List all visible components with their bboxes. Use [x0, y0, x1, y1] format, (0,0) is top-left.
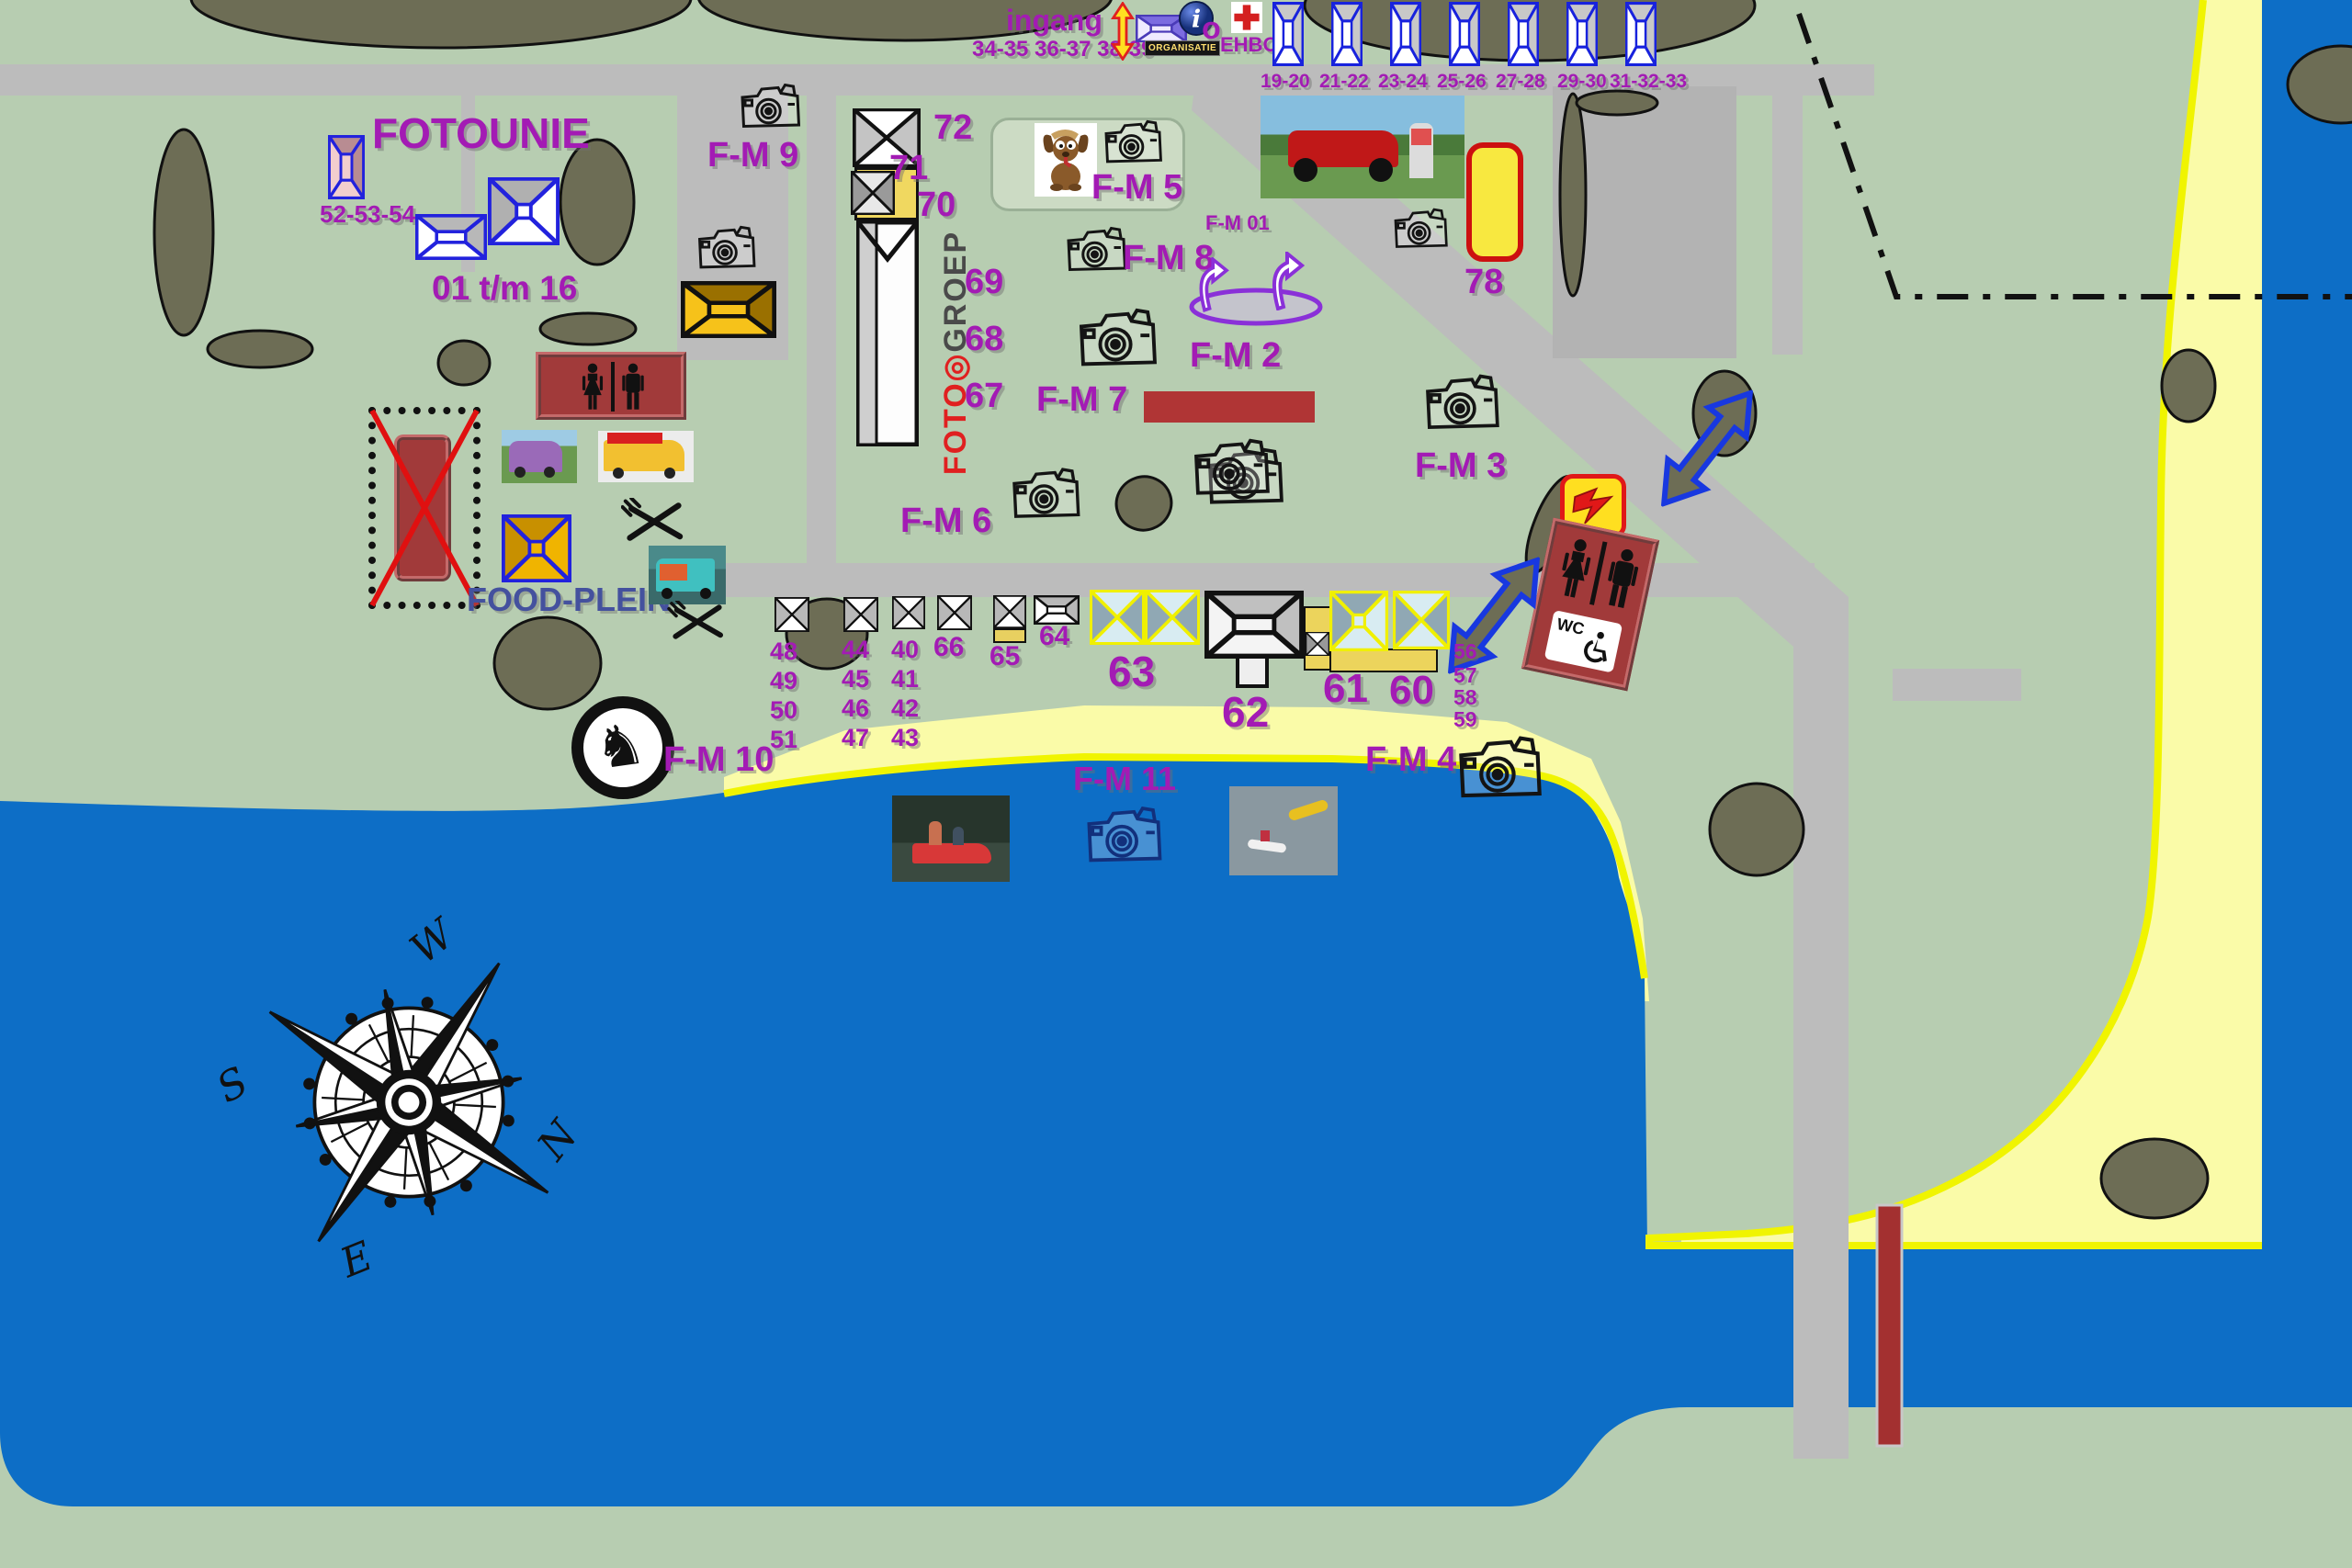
info-label: o — [1202, 13, 1221, 44]
entrance-arrow-icon — [1109, 2, 1136, 61]
fm4-label: F-M 4 — [1365, 742, 1456, 777]
cutlery-icon — [663, 601, 731, 643]
fm9-label: F-M 9 — [707, 138, 798, 173]
ehbo-label: EHBO — [1220, 35, 1279, 55]
paddler — [1261, 830, 1270, 841]
person-vest — [1411, 129, 1431, 145]
stand-62-annex — [1236, 655, 1269, 688]
stand-tent-63b — [1145, 590, 1200, 645]
stand-tent-63a — [1090, 590, 1145, 645]
stand-tent-48 — [775, 597, 809, 632]
truck-wheel — [514, 467, 526, 478]
stand-number-70: 70 — [917, 187, 955, 222]
camera-icon — [1389, 206, 1452, 255]
road-vertical-west — [807, 96, 836, 596]
man-icon — [1600, 546, 1644, 612]
curved-arrow-icon — [1194, 257, 1237, 312]
red-cross-out — [368, 407, 481, 609]
paddler — [953, 827, 964, 845]
divider — [611, 362, 615, 412]
stand-number-65: 65 — [989, 643, 1020, 671]
curved-arrow-icon — [1266, 252, 1314, 310]
fm5-label: F-M 5 — [1091, 170, 1182, 205]
road-spur-ne — [1772, 96, 1803, 355]
stand-tent-61 — [1329, 591, 1388, 651]
canoe-shape — [912, 843, 991, 863]
stand-tent-29-30 — [1566, 2, 1598, 66]
truck-cab — [660, 564, 687, 581]
bridge-red — [1877, 1205, 1902, 1446]
stand-label: 31-32-33 — [1610, 72, 1687, 91]
stand-number: 42 — [891, 696, 919, 721]
fotounie-range: 01 t/m 16 — [432, 271, 577, 305]
wheelchair-icon — [1576, 626, 1617, 669]
stand-tent-27-28 — [1508, 2, 1539, 66]
camera-icon — [1069, 305, 1165, 377]
dog-icon — [1038, 127, 1093, 193]
stand-number: 50 — [770, 698, 797, 723]
stand-number: 59 — [1453, 709, 1477, 730]
kayak-yellow — [1287, 798, 1329, 821]
knight-icon: ♞ — [594, 714, 653, 780]
stand-number-61: 61 — [1323, 669, 1368, 709]
stand-label: 23-24 — [1378, 72, 1428, 91]
stand-label: 19-20 — [1261, 72, 1310, 91]
stand-number: 43 — [891, 726, 919, 750]
stand-number-67: 67 — [965, 378, 1003, 413]
fm6-label: F-M 6 — [900, 503, 991, 538]
gold-tent-icon — [681, 281, 776, 338]
stand-number: 51 — [770, 728, 797, 752]
event-terrain-map: ingang 34-35 36-37 38-39 ORGANISATIE i o… — [0, 0, 2352, 1568]
stand-number-69: 69 — [965, 265, 1003, 299]
stand-number: 47 — [842, 726, 869, 750]
stand-number: 49 — [770, 669, 797, 694]
car-wheel — [1294, 158, 1317, 182]
truck-sign — [607, 433, 662, 444]
fm10-label: F-M 10 — [663, 742, 774, 777]
stand-number: 44 — [842, 637, 869, 662]
fm3-label: F-M 3 — [1415, 448, 1506, 483]
cutlery-icon — [621, 498, 687, 546]
truck-wheel — [544, 467, 555, 478]
woman-icon — [580, 363, 605, 411]
stand-tent-65 — [993, 595, 1026, 628]
camera-icon — [1099, 118, 1167, 171]
stand-78-area — [1466, 142, 1523, 262]
stand-tent-21-22 — [1331, 2, 1363, 66]
food-truck-photo-color — [649, 546, 726, 604]
svg-text:i: i — [1192, 6, 1201, 34]
stand-label: 29-30 — [1557, 72, 1607, 91]
truck-wheel — [661, 588, 673, 599]
truck-body — [604, 440, 684, 471]
dog-picture — [1035, 123, 1097, 197]
fotounie-tent-sq-icon — [488, 177, 560, 245]
stand-number-62: 62 — [1222, 691, 1269, 733]
compass-rose-icon — [234, 919, 583, 1286]
toilet-building — [536, 352, 686, 420]
fm10-club-logo: ♞ — [571, 696, 674, 799]
stand-tent-31-32-33 — [1625, 2, 1657, 66]
fm7-label: F-M 7 — [1036, 382, 1127, 417]
fm11-label: F-M 11 — [1073, 762, 1176, 795]
stand-tent-23-24 — [1390, 2, 1421, 66]
food-plein-label: FOOD-PLEIN — [467, 581, 671, 619]
car-wheel — [1369, 158, 1393, 182]
stand-number-68: 68 — [965, 321, 1003, 356]
fotounie-tent-h-icon — [415, 214, 487, 260]
marquee-small-tent — [851, 171, 895, 215]
road-pier — [1793, 597, 1849, 1459]
canoe-photo — [892, 795, 1010, 882]
closed-area-box — [368, 407, 481, 609]
fotounie-stands-52: 52-53-54 — [320, 202, 415, 226]
water-right-strip — [2262, 0, 2352, 1260]
stand-number: 40 — [891, 637, 919, 662]
fotounie-tent-icon — [328, 135, 365, 199]
camera-icon — [1005, 465, 1086, 527]
stand-61-small-tent — [1306, 632, 1329, 656]
camera-icon — [1452, 731, 1547, 810]
food-tent-icon — [502, 514, 571, 582]
fm2-stage — [1144, 391, 1315, 423]
camera-icon — [692, 223, 761, 276]
stand-number: 46 — [842, 696, 869, 721]
camera-icon — [1185, 435, 1277, 505]
entrance-label: ingang — [1006, 6, 1102, 35]
stand-number-71: 71 — [889, 151, 928, 186]
fotounie-title: FOTOUNIE — [372, 112, 590, 154]
stand-number-78: 78 — [1464, 265, 1503, 299]
food-truck-photo-purple — [502, 430, 577, 483]
vintage-car-photo — [1261, 96, 1464, 198]
first-aid-icon — [1231, 2, 1262, 33]
truck-wheel — [700, 588, 711, 599]
stand-number: 57 — [1453, 665, 1477, 686]
stand-tent-60 — [1393, 591, 1450, 649]
truck-wheel — [664, 468, 675, 479]
stand-number-66: 66 — [933, 634, 964, 661]
stand-tent-66 — [937, 595, 972, 630]
stand-number-64: 64 — [1039, 623, 1069, 650]
food-truck-photo-yellow — [598, 431, 694, 482]
stand-number: 45 — [842, 667, 869, 692]
fm01-label: F-M 01 — [1205, 213, 1270, 233]
kayak-photo — [1229, 786, 1338, 875]
stand-tent-19-20 — [1272, 2, 1304, 66]
stand-label: 27-28 — [1496, 72, 1545, 91]
man-icon — [620, 363, 646, 411]
paddler — [929, 821, 942, 845]
stand-tent-40 — [892, 596, 925, 629]
truck-wheel — [613, 468, 624, 479]
stand-tent-25-26 — [1449, 2, 1480, 66]
fm2-label: F-M 2 — [1190, 338, 1281, 373]
stand-number: 41 — [891, 667, 919, 692]
road-beach-stub — [1893, 669, 2021, 701]
beach-right — [1681, 0, 2262, 1268]
stand-number-60: 60 — [1389, 671, 1434, 711]
stand-number-63: 63 — [1108, 650, 1155, 693]
camera-icon — [1417, 371, 1507, 439]
stand-tent-44 — [843, 597, 878, 632]
stand-label: 21-22 — [1319, 72, 1369, 91]
stand-label: 25-26 — [1437, 72, 1487, 91]
stand-tent-62 — [1204, 591, 1304, 659]
camera-icon — [733, 81, 807, 136]
stand-number: 58 — [1453, 687, 1477, 708]
stand-number-72: 72 — [933, 110, 972, 145]
stand-number: 56 — [1453, 641, 1477, 662]
stand-number: 48 — [770, 639, 797, 664]
camera-icon — [1080, 799, 1167, 876]
